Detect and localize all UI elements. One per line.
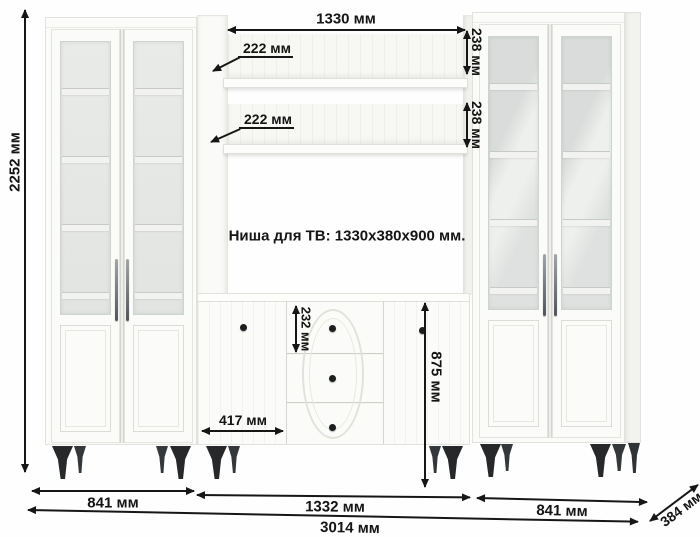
dim-right-width-label: 841 мм (536, 502, 588, 520)
dim-shelf-depth-top-label: 222 мм (243, 40, 291, 56)
cabinet-leg (442, 446, 463, 479)
interior-shelf (62, 224, 109, 231)
cabinet-leg (228, 446, 240, 473)
right-cabinet (472, 12, 625, 443)
interior-shelf (62, 292, 109, 299)
dim-commode-height-label: 875 мм (428, 351, 445, 402)
door-seam (548, 24, 552, 438)
dim-left-width-line (32, 490, 194, 492)
furniture-dimension-diagram: 2252 мм 1330 мм 222 мм 222 мм 238 мм 238… (0, 0, 700, 537)
tv-niche-note: Ниша для ТВ: 1330x380x900 мм. (229, 228, 466, 245)
dim-commode-height-line (424, 303, 426, 487)
dim-niche-width-label: 1330 мм (316, 11, 376, 28)
dim-drawer-height-label: 232 мм (299, 307, 314, 352)
divider (383, 301, 384, 444)
divider (286, 301, 287, 444)
interior-shelf (563, 151, 610, 158)
dim-shelf-depth-top-line (238, 56, 293, 58)
glass-pane (561, 36, 612, 310)
left-cabinet (45, 17, 197, 445)
drawer-knob (329, 375, 336, 382)
dim-shelf-height-bottom-line (466, 103, 468, 147)
niche-left-pillar (197, 15, 228, 295)
door-seam (120, 29, 124, 443)
interior-shelf (490, 287, 537, 294)
cabinet-leg (170, 446, 191, 479)
dim-shelf-height-top-label: 238 мм (469, 28, 485, 76)
right-cabinet-side-panel (624, 12, 641, 443)
glass-pane (60, 41, 111, 315)
interior-shelf (135, 156, 182, 163)
cabinet-leg (612, 444, 626, 471)
interior-shelf (135, 88, 182, 95)
glass-door (51, 29, 120, 443)
cabinet-leg (52, 446, 73, 479)
glass-door (552, 24, 621, 438)
cabinet-leg (74, 446, 86, 473)
glass-pane (133, 41, 184, 315)
wall-shelf-top-board (223, 78, 468, 88)
dim-shelf-height-top-line (466, 31, 468, 74)
door-handle (126, 259, 129, 321)
lower-door-panel (488, 320, 539, 427)
cabinet-leg (429, 446, 441, 473)
dim-niche-width-line (228, 29, 465, 31)
cabinet-leg (590, 444, 611, 477)
glass-door (124, 29, 193, 443)
cabinet-leg (480, 444, 501, 477)
glass-door (479, 24, 548, 438)
cabinet-leg (501, 444, 513, 471)
interior-shelf (135, 292, 182, 299)
cabinet-leg (628, 443, 640, 473)
interior-shelf (563, 287, 610, 294)
dim-center-width-label: 1332 мм (305, 498, 365, 516)
wall-shelf-bottom-board (223, 144, 468, 154)
interior-shelf (563, 219, 610, 226)
interior-shelf (490, 151, 537, 158)
dim-shelf-height-bottom-label: 238 мм (469, 101, 485, 149)
dim-door-width-line (202, 430, 283, 432)
cabinet-leg (156, 446, 168, 473)
dim-drawer-height-line (295, 306, 297, 352)
door-handle (554, 254, 557, 316)
dim-left-width-label: 841 мм (87, 495, 138, 512)
oval-trim (309, 318, 357, 430)
drawer-knob (329, 325, 336, 332)
lower-door-panel (133, 325, 184, 432)
drawer-knob (329, 424, 336, 431)
drawer-knob (240, 324, 247, 331)
dim-total-height-line (24, 10, 26, 472)
interior-shelf (563, 83, 610, 90)
glass-pane (488, 36, 539, 310)
interior-shelf (490, 219, 537, 226)
dim-total-width-label: 3014 мм (320, 519, 380, 537)
dim-door-width-label: 417 мм (219, 412, 267, 428)
dim-total-height-label: 2252 мм (7, 132, 24, 192)
interior-shelf (135, 224, 182, 231)
dim-shelf-depth-bottom-line (239, 127, 294, 129)
interior-shelf (62, 156, 109, 163)
interior-shelf (62, 88, 109, 95)
door-handle (115, 259, 118, 321)
cabinet-leg (206, 446, 227, 479)
door-handle (543, 254, 546, 316)
dim-shelf-depth-bottom-label: 222 мм (244, 111, 292, 127)
lower-door-panel (60, 325, 111, 432)
interior-shelf (490, 83, 537, 90)
lower-door-panel (561, 320, 612, 427)
